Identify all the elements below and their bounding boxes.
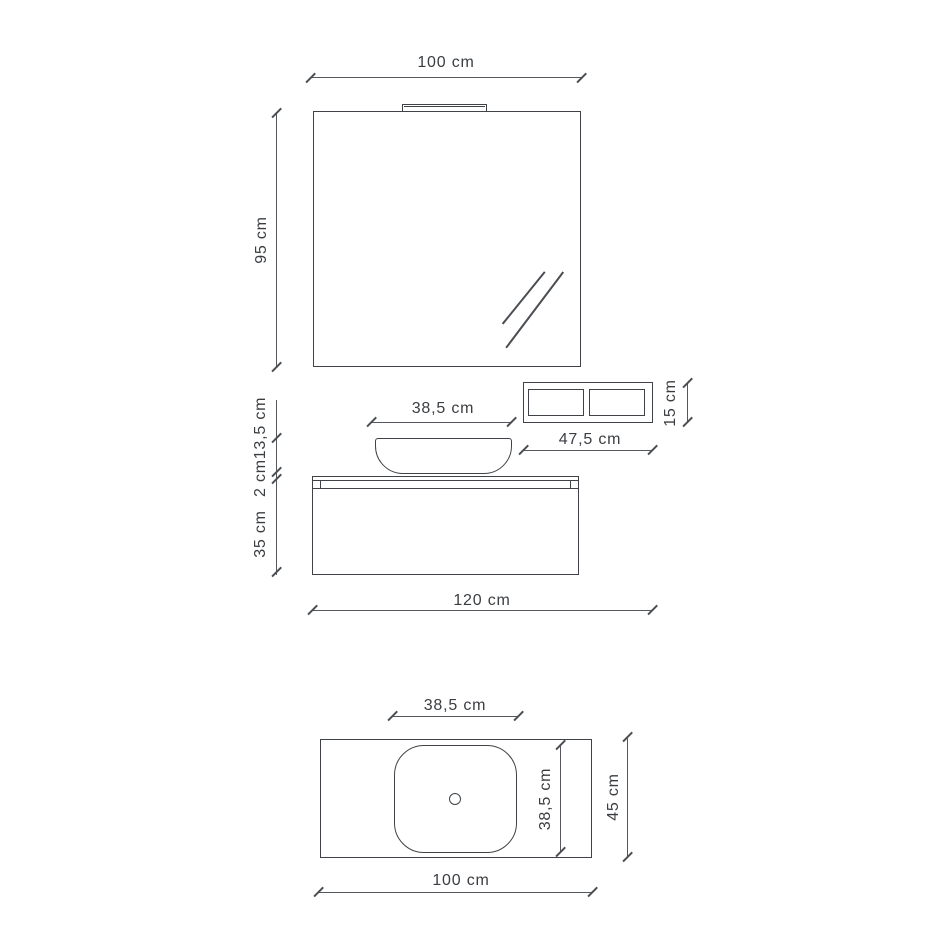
wall-shelf-right-compartment	[589, 389, 645, 416]
countertop-edge-line	[313, 480, 578, 481]
countertop-end-cap	[570, 480, 571, 489]
drain-icon	[449, 793, 461, 805]
dim-line	[560, 745, 561, 853]
dim-line	[371, 422, 512, 423]
countertop-end-cap	[320, 480, 321, 489]
dim-label-shelf-height: 15 cm	[661, 343, 681, 463]
dim-line	[318, 892, 592, 893]
dim-label-sink-depth: 38,5 cm	[536, 739, 556, 859]
dim-label-mirror-width: 100 cm	[386, 53, 506, 73]
dim-label-sink-width: 38,5 cm	[395, 696, 515, 716]
dim-label-total-width: 120 cm	[422, 591, 542, 611]
dim-line	[310, 77, 581, 78]
dim-line	[276, 112, 277, 368]
dim-line	[392, 716, 518, 717]
dimension-drawing: 100 cm 95 cm 15 cm	[0, 0, 950, 950]
wall-shelf	[523, 382, 653, 423]
dim-label-basin-width: 38,5 cm	[383, 399, 503, 419]
vanity-cabinet	[312, 476, 579, 575]
dim-line	[276, 400, 277, 575]
dim-line	[523, 450, 653, 451]
dim-label-counter-width: 100 cm	[401, 871, 521, 891]
dim-label-cabinet-height: 35 cm	[251, 474, 271, 594]
vessel-basin	[375, 438, 512, 474]
dim-line	[627, 737, 628, 858]
dim-label-counter-depth: 45 cm	[604, 737, 624, 857]
mirror	[313, 111, 581, 367]
drawer-groove-line	[313, 488, 578, 489]
dim-line	[687, 382, 688, 423]
light-fixture-inner-line	[404, 106, 485, 107]
dim-label-mirror-height: 95 cm	[252, 180, 272, 300]
wall-shelf-left-compartment	[528, 389, 584, 416]
dim-line	[312, 610, 652, 611]
dim-label-shelf-width: 47,5 cm	[530, 430, 650, 450]
